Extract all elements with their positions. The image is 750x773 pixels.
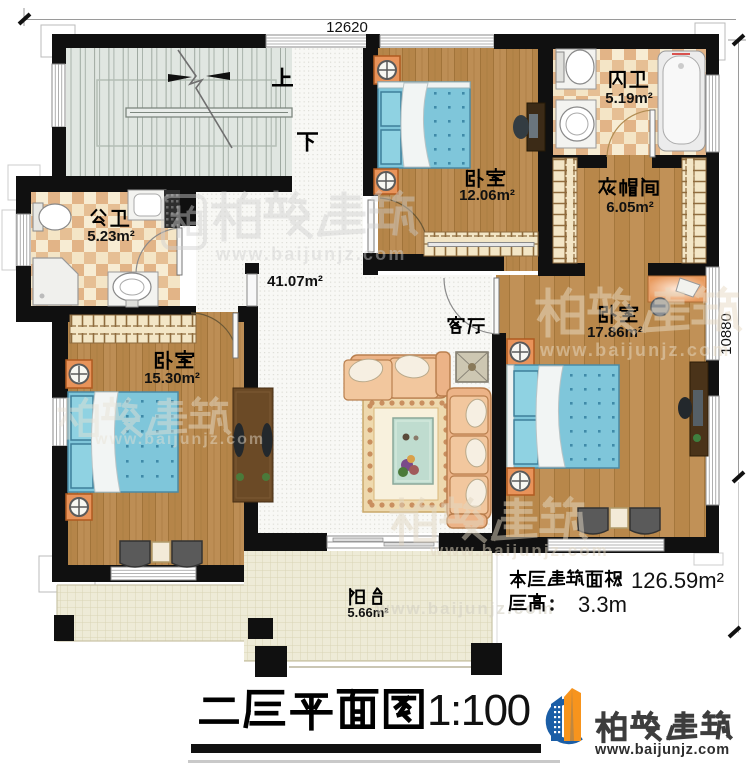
svg-text:www.baijunjz.com: www.baijunjz.com (429, 541, 609, 560)
svg-text:15.30m²: 15.30m² (144, 370, 200, 387)
svg-text:5.23m²: 5.23m² (87, 228, 135, 245)
svg-text:www.baijunjz.com: www.baijunjz.com (94, 431, 265, 448)
svg-text:www.baijunjz.com: www.baijunjz.com (375, 599, 555, 618)
svg-text:5.19m²: 5.19m² (605, 90, 653, 107)
svg-text:41.07m²: 41.07m² (267, 273, 323, 290)
svg-text:www.baijunjz.com: www.baijunjz.com (539, 340, 731, 360)
svg-text:www.baijunjz.com: www.baijunjz.com (215, 244, 407, 264)
svg-text:12.06m²: 12.06m² (459, 187, 515, 204)
svg-text:1:100: 1:100 (427, 686, 530, 735)
svg-text:3.3m: 3.3m (578, 592, 627, 617)
svg-text:6.05m²: 6.05m² (606, 199, 654, 216)
svg-text:126.59m²: 126.59m² (631, 568, 724, 593)
svg-text:12620: 12620 (326, 19, 368, 36)
svg-text:www.baijunjz.com: www.baijunjz.com (594, 742, 730, 758)
